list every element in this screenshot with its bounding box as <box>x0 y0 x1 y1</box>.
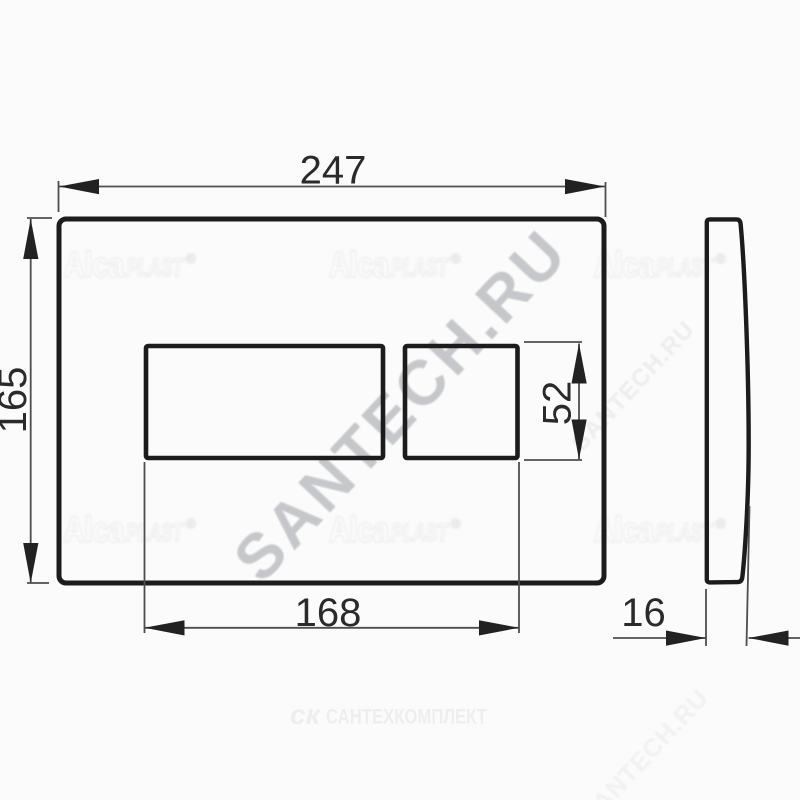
svg-text:52: 52 <box>536 381 580 426</box>
svg-text:®: ® <box>186 251 196 266</box>
svg-text:®: ® <box>186 516 196 531</box>
svg-text:®: ® <box>451 251 461 266</box>
svg-text:16: 16 <box>621 591 666 635</box>
svg-text:®: ® <box>451 516 461 531</box>
svg-text:Alca: Alca <box>329 244 390 285</box>
svg-text:SANTECH.RU: SANTECH.RU <box>566 316 700 457</box>
svg-text:ск: ск <box>290 699 322 730</box>
svg-text:SANTECH.RU: SANTECH.RU <box>575 684 714 800</box>
svg-text:168: 168 <box>295 591 362 635</box>
svg-text:PLAST: PLAST <box>391 519 450 547</box>
svg-text:165: 165 <box>0 367 35 434</box>
svg-text:PLAST: PLAST <box>391 254 450 282</box>
svg-text:Alca: Alca <box>64 509 125 550</box>
svg-text:®: ® <box>716 251 726 266</box>
svg-text:®: ® <box>716 516 726 531</box>
svg-text:PLAST: PLAST <box>126 519 185 547</box>
svg-text:PLAST: PLAST <box>126 254 185 282</box>
svg-text:САНТЕХКОМПЛЕКТ: САНТЕХКОМПЛЕКТ <box>326 706 487 729</box>
svg-text:Alca: Alca <box>64 244 125 285</box>
svg-text:247: 247 <box>300 149 367 193</box>
